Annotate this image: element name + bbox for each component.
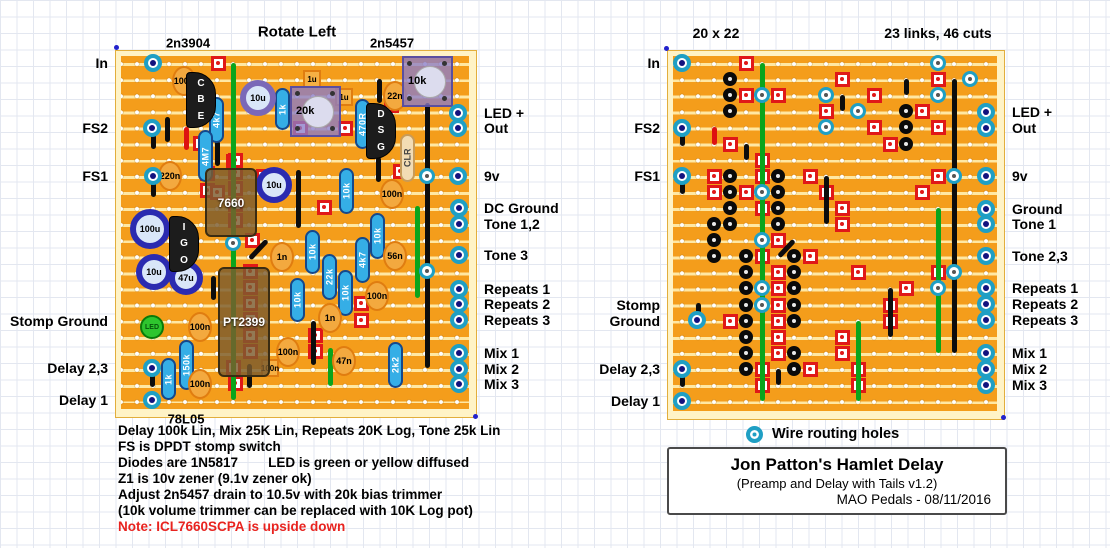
transistor-pin-label: G <box>377 142 385 153</box>
routing-hole-center <box>952 174 956 178</box>
solder-pad <box>977 215 995 233</box>
wire-routing-legend: Wire routing holes <box>746 425 899 443</box>
jumper-link <box>377 79 382 103</box>
title-box: Jon Patton's Hamlet Delay (Preamp and De… <box>667 447 1007 515</box>
strip-cut-center <box>712 238 716 242</box>
pin-label-right: Mix 3 <box>1012 377 1047 393</box>
strip-cut-center <box>728 77 732 81</box>
routing-hole-icon <box>946 264 962 280</box>
solder-pad <box>977 247 995 265</box>
solder-pad-center <box>983 253 989 259</box>
cut-dot <box>808 174 812 178</box>
cut-dot <box>824 109 828 113</box>
cut-dot <box>776 238 780 242</box>
cut-dot <box>776 319 780 323</box>
routing-hole-icon <box>930 55 946 71</box>
pin-label-left: In <box>0 55 660 71</box>
solder-pad-center <box>456 205 462 211</box>
pin-label-left: FS1 <box>0 168 660 184</box>
board-corner-dot <box>114 45 119 50</box>
trimmer-leg <box>295 91 300 96</box>
cut-dot <box>840 351 844 355</box>
strip-cut-center <box>904 125 908 129</box>
strip-cut-icon <box>739 298 753 312</box>
note-line: Z1 is 10v zener (9.1v zener ok) <box>118 471 500 487</box>
transistor-pin-label: D <box>377 109 384 120</box>
strip-cut-icon <box>739 346 753 360</box>
pin-label-left: Delay 2,3 <box>0 361 660 377</box>
pin-label-right: DC Ground <box>484 200 559 216</box>
routing-hole-center <box>968 77 972 81</box>
cut-dot <box>872 93 876 97</box>
board-annotation: 23 links, 46 cuts <box>884 25 991 41</box>
strip-cut-center <box>744 367 748 371</box>
solder-pad-center <box>456 252 462 258</box>
cut-icon <box>899 281 914 296</box>
cut-icon <box>739 88 754 103</box>
cut-dot <box>920 109 924 113</box>
cut-icon <box>739 56 754 71</box>
solder-pad <box>977 167 995 185</box>
cut-dot <box>322 205 326 209</box>
board-annotation: 2n3904 <box>166 36 210 51</box>
strip-cut-icon <box>739 362 753 376</box>
cut-dot <box>872 125 876 129</box>
trimmer-label: 20k <box>296 105 314 117</box>
jumper-link <box>712 127 717 145</box>
cut-dot <box>712 174 716 178</box>
cut-dot <box>808 367 812 371</box>
pin-label-right: Tone 2,3 <box>1012 248 1068 264</box>
jumper-link <box>744 144 749 160</box>
strip-cut-center <box>904 142 908 146</box>
cut-icon <box>723 137 738 152</box>
cut-icon <box>803 249 818 264</box>
solder-pad-center <box>679 125 685 131</box>
board-annotation: 2n5457 <box>370 36 414 51</box>
strip-cut-icon <box>723 201 737 215</box>
routing-hole-icon <box>818 87 834 103</box>
transistor-pin-label: I <box>183 222 186 233</box>
cut-icon <box>835 201 850 216</box>
jumper-link <box>215 141 220 166</box>
solder-pad-center <box>456 221 462 227</box>
cut-icon <box>931 72 946 87</box>
routing-hole-icon <box>930 280 946 296</box>
cut-dot <box>250 238 254 242</box>
routing-hole-center <box>760 190 764 194</box>
pin-label-right: Repeats 2 <box>1012 296 1078 312</box>
cut-dot <box>856 270 860 274</box>
cut-icon <box>317 200 332 215</box>
cut-dot <box>744 61 748 65</box>
solder-pad-center <box>983 206 989 212</box>
strip-cut-icon <box>739 330 753 344</box>
pin-label-right: Repeats 3 <box>1012 312 1078 328</box>
cut-dot <box>776 303 780 307</box>
strip-cut-icon <box>899 137 913 151</box>
routing-hole-icon <box>225 235 241 251</box>
strip-cut-icon <box>739 314 753 328</box>
strip-cut-center <box>728 222 732 226</box>
strip-cut-center <box>728 190 732 194</box>
board-corner-dot <box>1001 415 1006 420</box>
strip-cut-center <box>744 335 748 339</box>
routing-hole-center <box>824 125 828 129</box>
strip-cut-center <box>712 222 716 226</box>
strip-cut-icon <box>723 185 737 199</box>
routing-hole-icon <box>419 263 435 279</box>
routing-hole-center <box>425 269 429 273</box>
cut-icon <box>867 88 882 103</box>
note-line-warning: Note: ICL7660SCPA is upside down <box>118 519 500 535</box>
note-line: Adjust 2n5457 drain to 10.5v with 20k bi… <box>118 487 500 503</box>
solder-pad-center <box>983 301 989 307</box>
strip-cut-icon <box>723 104 737 118</box>
pin-label-right: Tone 1,2 <box>484 216 540 232</box>
capacitor: 56n <box>383 241 407 271</box>
cut-icon <box>931 169 946 184</box>
cut-icon <box>739 185 754 200</box>
cut-icon <box>835 72 850 87</box>
strip-cut-center <box>792 351 796 355</box>
solder-pad-center <box>983 350 989 356</box>
solder-pad-center <box>679 366 685 372</box>
cut-icon <box>819 104 834 119</box>
routing-hole-center <box>760 93 764 97</box>
jumper-link <box>952 79 957 353</box>
board-corner-dot <box>473 414 478 419</box>
cut-icon <box>771 233 786 248</box>
board-corner-dot <box>664 46 669 51</box>
solder-pad <box>977 376 995 394</box>
pin-label-right: Mix 1 <box>484 345 519 361</box>
jumper-link <box>776 369 781 385</box>
solder-pad <box>688 311 706 329</box>
pin-label-right: Mix 1 <box>1012 345 1047 361</box>
electrolytic-capacitor: 100u <box>130 209 170 249</box>
strip-cut-icon <box>723 217 737 231</box>
strip-cut-center <box>744 254 748 258</box>
pin-label-left: Stomp <box>0 297 660 313</box>
transistor-pin-label: C <box>197 78 204 89</box>
cut-dot <box>776 335 780 339</box>
pin-label-right: Repeats 1 <box>484 281 550 297</box>
strip-cut-center <box>792 286 796 290</box>
solder-pad <box>673 392 691 410</box>
notes-block: Delay 100k Lin, Mix 25K Lin, Repeats 20K… <box>118 423 500 535</box>
routing-hole-center <box>760 238 764 242</box>
solder-pad-center <box>694 317 700 323</box>
cut-icon <box>707 169 722 184</box>
routing-hole-center <box>760 286 764 290</box>
strip-cut-icon <box>739 281 753 295</box>
routing-hole-center <box>231 241 235 245</box>
solder-pad <box>977 311 995 329</box>
cut-icon <box>771 298 786 313</box>
solder-pad <box>450 375 468 393</box>
solder-pad-center <box>983 125 989 131</box>
cut-icon <box>723 314 738 329</box>
strip-cut-center <box>728 206 732 210</box>
board-annotation: 78L05 <box>168 412 205 427</box>
pin-label-right: Ground <box>1012 201 1063 217</box>
cut-dot <box>904 286 908 290</box>
strip-cut-center <box>792 367 796 371</box>
cut-dot <box>840 335 844 339</box>
cut-icon <box>771 281 786 296</box>
cut-dot <box>776 93 780 97</box>
cut-icon <box>707 185 722 200</box>
solder-pad-center <box>456 381 462 387</box>
cut-icon <box>835 217 850 232</box>
routing-hole-icon <box>930 87 946 103</box>
strip-cut-icon <box>739 249 753 263</box>
cut-icon <box>931 120 946 135</box>
cut-dot <box>744 93 748 97</box>
solder-pad-center <box>679 60 685 66</box>
jumper-link <box>888 288 893 337</box>
strip-cut-center <box>744 286 748 290</box>
pin-label-right: Mix 2 <box>1012 361 1047 377</box>
strip-cut-icon <box>723 169 737 183</box>
strip-cut-center <box>792 303 796 307</box>
strip-cut-center <box>776 222 780 226</box>
project-title: Jon Patton's Hamlet Delay <box>669 455 1005 475</box>
pin-label-right: Repeats 1 <box>1012 280 1078 296</box>
routing-hole-icon <box>746 426 763 443</box>
solder-pad-center <box>983 109 989 115</box>
routing-hole-center <box>936 93 940 97</box>
electrolytic-capacitor: 10u <box>240 80 276 116</box>
strip-cut-icon <box>787 265 801 279</box>
routing-hole-icon <box>962 71 978 87</box>
electrolytic-capacitor: 10u <box>136 254 172 290</box>
solder-pad-center <box>983 173 989 179</box>
resistor: 10k <box>305 230 320 274</box>
strip-cut-icon <box>787 249 801 263</box>
routing-hole-center <box>856 109 860 113</box>
strip-cut-icon <box>899 104 913 118</box>
routing-hole-icon <box>850 103 866 119</box>
cut-dot <box>744 190 748 194</box>
strip-cut-center <box>792 319 796 323</box>
routing-hole-center <box>952 270 956 274</box>
pin-label-right: Tone 3 <box>484 247 528 263</box>
cut-icon <box>771 330 786 345</box>
strip-cut-icon <box>787 346 801 360</box>
strip-cut-icon <box>707 233 721 247</box>
solder-pad-center <box>983 317 989 323</box>
solder-pad-center <box>983 285 989 291</box>
solder-pad <box>673 54 691 72</box>
cut-icon <box>803 362 818 377</box>
cut-icon <box>771 265 786 280</box>
solder-pad <box>673 119 691 137</box>
strip-cut-center <box>744 303 748 307</box>
strip-cut-icon <box>723 88 737 102</box>
strip-cut-center <box>744 351 748 355</box>
strip-cut-center <box>792 270 796 274</box>
pin-label-right: Tone 1 <box>1012 216 1056 232</box>
strip-cut-center <box>776 190 780 194</box>
strip-cut-center <box>792 254 796 258</box>
cut-icon <box>867 120 882 135</box>
strip-cut-center <box>776 206 780 210</box>
strip-cut-icon <box>707 249 721 263</box>
strip-cut-icon <box>771 201 785 215</box>
resistor: 4k7 <box>355 237 370 283</box>
cut-icon <box>771 346 786 361</box>
strip-cut-icon <box>723 72 737 86</box>
routing-hole-center <box>936 61 940 65</box>
routing-hole-center <box>760 303 764 307</box>
cut-dot <box>936 77 940 81</box>
strip-cut-icon <box>787 281 801 295</box>
strip-cut-icon <box>787 314 801 328</box>
routing-hole-icon <box>754 87 770 103</box>
legend-label: Wire routing holes <box>772 426 899 442</box>
routing-hole-icon <box>754 184 770 200</box>
resistor: 22k <box>322 254 337 300</box>
solder-pad-center <box>983 221 989 227</box>
cut-icon <box>915 104 930 119</box>
pin-label-left: FS2 <box>0 120 660 136</box>
solder-pad-center <box>456 350 462 356</box>
cut-dot <box>888 142 892 146</box>
trimmer-leg <box>330 91 335 96</box>
cut-dot <box>712 190 716 194</box>
note-line: Diodes are 1N5817 LED is green or yellow… <box>118 455 500 471</box>
solder-pad-center <box>456 286 462 292</box>
strip-cut-center <box>728 93 732 97</box>
cut-dot <box>936 174 940 178</box>
trimmer-label: 10k <box>408 75 426 87</box>
cut-icon <box>915 185 930 200</box>
trimmer-leg <box>442 96 447 101</box>
cut-dot <box>840 206 844 210</box>
strip-cut-icon <box>739 265 753 279</box>
strip-cut-center <box>744 319 748 323</box>
routing-hole-icon <box>754 280 770 296</box>
routing-hole-icon <box>754 297 770 313</box>
solder-pad-center <box>679 398 685 404</box>
transistor-pin-label: B <box>197 94 204 105</box>
transistor-pin-label: G <box>180 238 188 249</box>
strip-cut-icon <box>899 120 913 134</box>
cut-icon <box>771 314 786 329</box>
cut-dot <box>840 77 844 81</box>
cut-dot <box>808 254 812 258</box>
strip-cut-icon <box>787 298 801 312</box>
jumper-link <box>415 206 420 298</box>
solder-pad <box>450 246 468 264</box>
pin-label-right: Mix 3 <box>484 376 519 392</box>
cut-dot <box>776 270 780 274</box>
note-line: FS is DPDT stomp switch <box>118 439 500 455</box>
strip-cut-center <box>712 254 716 258</box>
cut-icon <box>771 88 786 103</box>
cut-dot <box>936 125 940 129</box>
cut-icon <box>851 265 866 280</box>
note-line: (10k volume trimmer can be replaced with… <box>118 503 500 519</box>
strip-cut-icon <box>707 217 721 231</box>
pin-label-left: Ground <box>0 313 660 329</box>
solder-pad <box>673 167 691 185</box>
cut-dot <box>728 319 732 323</box>
jumper-link <box>856 321 861 401</box>
strip-cut-center <box>744 270 748 274</box>
strip-cut-center <box>728 174 732 178</box>
solder-pad-center <box>983 382 989 388</box>
jumper-link <box>904 79 909 95</box>
pin-label-left: Delay 1 <box>0 393 660 409</box>
layout-canvas: Delay 100k Lin, Mix 25K Lin, Repeats 20K… <box>0 0 1110 548</box>
routing-hole-center <box>824 93 828 97</box>
cut-icon <box>883 137 898 152</box>
project-subtitle: (Preamp and Delay with Tails v1.2) <box>669 476 1005 491</box>
solder-pad <box>450 215 468 233</box>
board-annotation: 20 x 22 <box>693 25 740 41</box>
pin-label-right: Out <box>1012 120 1036 136</box>
pin-label-right: LED + <box>1012 104 1052 120</box>
strip-cut-icon <box>787 362 801 376</box>
routing-hole-icon <box>818 119 834 135</box>
strip-cut-icon <box>771 217 785 231</box>
pin-label-right: 9v <box>1012 168 1028 184</box>
cut-dot <box>776 286 780 290</box>
routing-hole-icon <box>946 168 962 184</box>
trimmer-leg <box>407 96 412 101</box>
cut-dot <box>776 351 780 355</box>
routing-hole-icon <box>754 232 770 248</box>
strip-cut-icon <box>771 185 785 199</box>
strip-cut-center <box>728 109 732 113</box>
solder-pad-center <box>983 366 989 372</box>
cut-icon <box>835 346 850 361</box>
project-credit: MAO Pedals - 08/11/2016 <box>669 492 1005 507</box>
cut-dot <box>920 190 924 194</box>
cut-dot <box>840 222 844 226</box>
cut-icon <box>803 169 818 184</box>
board-annotation: Rotate Left <box>258 24 336 41</box>
transistor-pin-label: O <box>180 255 188 266</box>
jumper-link <box>840 95 845 111</box>
solder-pad-center <box>679 173 685 179</box>
solder-pad-center <box>455 110 461 116</box>
pin-label-right: LED + <box>484 105 524 121</box>
strip-cut-icon <box>771 169 785 183</box>
solder-pad <box>977 119 995 137</box>
capacitor: 1n <box>270 242 294 272</box>
routing-hole-center <box>936 286 940 290</box>
jumper-link <box>824 176 829 224</box>
cut-icon <box>835 330 850 345</box>
solder-pad <box>673 360 691 378</box>
strip-cut-center <box>776 174 780 178</box>
cut-dot <box>728 142 732 146</box>
strip-cut-center <box>904 109 908 113</box>
